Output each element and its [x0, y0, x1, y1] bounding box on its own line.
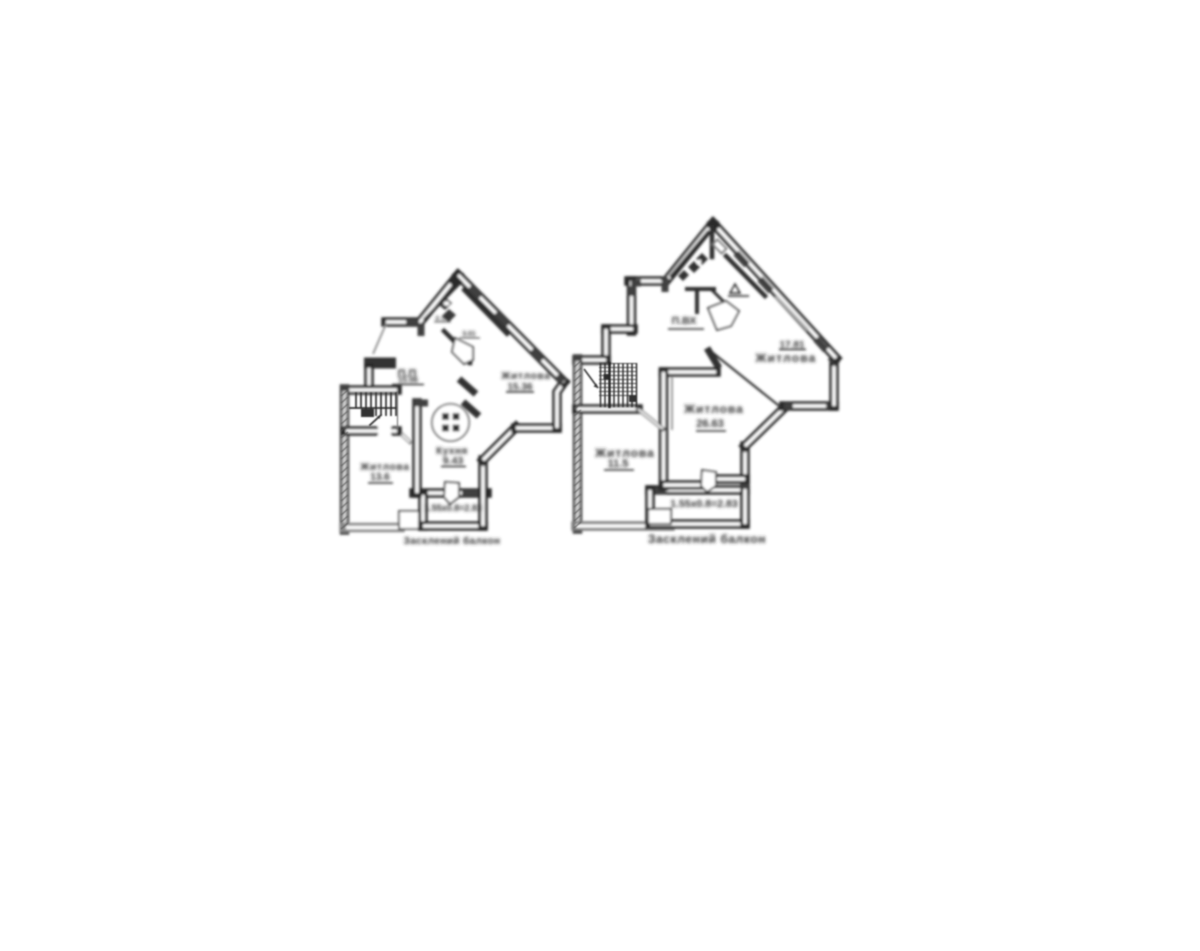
svg-text:3.01: 3.01: [462, 331, 476, 338]
svg-text:Засклений балкон: Засклений балкон: [404, 535, 501, 547]
svg-text:Засклений балкон: Засклений балкон: [648, 532, 766, 546]
svg-text:1.55х0.8=2.83: 1.55х0.8=2.83: [670, 498, 738, 510]
svg-text:15.06: 15.06: [398, 376, 419, 385]
svg-text:Житлова: Житлова: [500, 371, 550, 382]
svg-text:13.6: 13.6: [370, 472, 390, 483]
svg-text:Житлова: Житлова: [683, 402, 744, 416]
svg-text:26.63: 26.63: [696, 418, 724, 430]
svg-text:11.5: 11.5: [608, 458, 629, 470]
svg-text:1.55х0.8=2.83: 1.55х0.8=2.83: [424, 503, 482, 513]
svg-text:Житлова: Житлова: [754, 351, 816, 365]
svg-text:П.ВХ: П.ВХ: [672, 315, 697, 327]
svg-text:9.43: 9.43: [443, 455, 464, 467]
